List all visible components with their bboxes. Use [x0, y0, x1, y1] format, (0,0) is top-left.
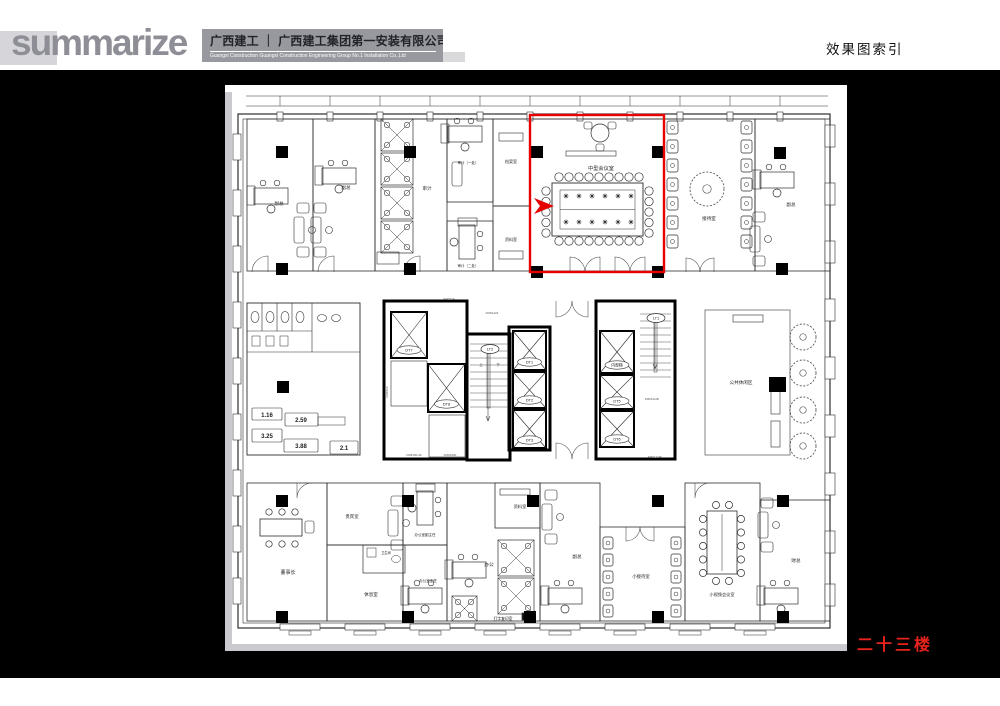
band-divider	[210, 51, 436, 52]
company-band: 广西建工 ｜ 广西建工集团第一安装有限公司 Guangxi Constructi…	[202, 29, 443, 62]
slide-header: summarize 广西建工 ｜ 广西建工集团第一安装有限公司 Guangxi …	[0, 0, 1000, 70]
logo-text: summarize	[11, 24, 186, 61]
band-tail-decor	[443, 52, 465, 62]
company-name-en: Guangxi Construction Guangxi Constructio…	[210, 53, 443, 59]
page-title: 效果图索引	[826, 38, 904, 58]
floor-label: 二十三楼	[857, 631, 933, 655]
company-name-cn: 广西建工 ｜ 广西建工集团第一安装有限公司	[210, 32, 443, 49]
sheet-bottom-edge	[232, 644, 847, 651]
sheet-left-edge	[225, 92, 232, 651]
plan-sheet	[225, 85, 847, 651]
